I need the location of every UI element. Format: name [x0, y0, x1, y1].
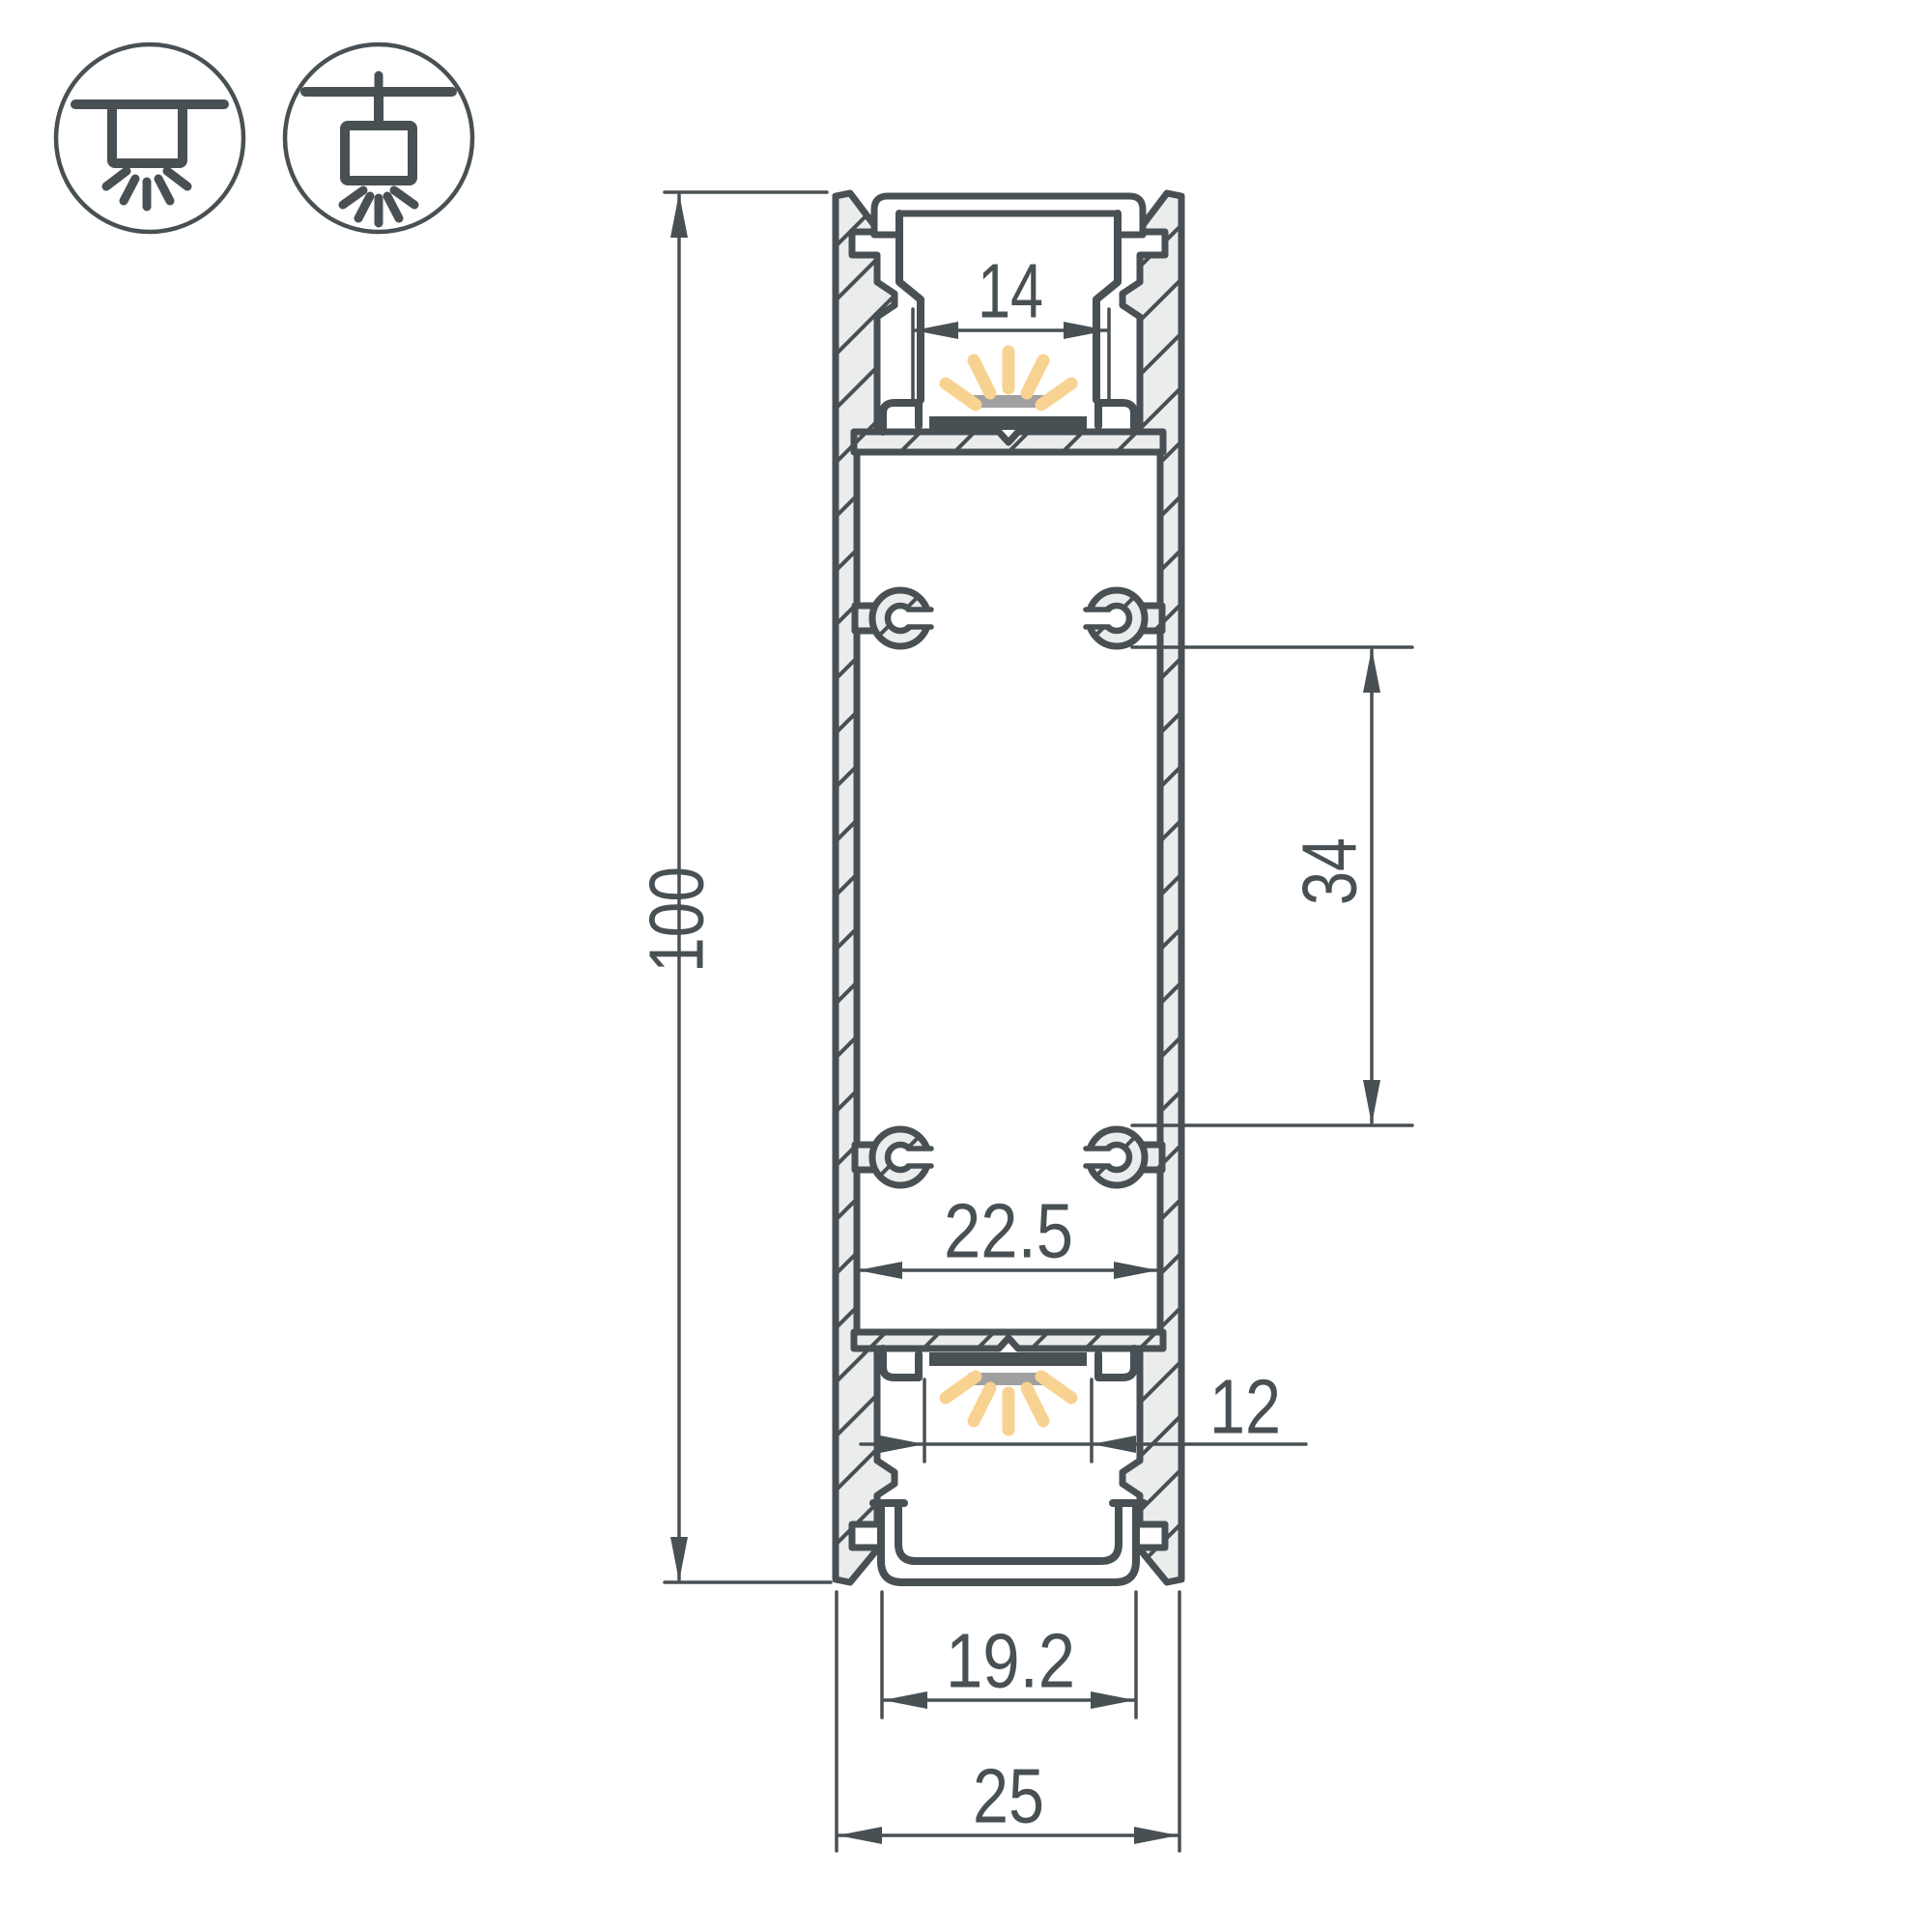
- bottom-divider-wall: [854, 1332, 1163, 1349]
- arrowhead-left: [858, 1262, 902, 1279]
- arrowhead-up: [670, 193, 688, 238]
- arrowhead-up: [1363, 648, 1380, 693]
- screw-boss-top-left: [855, 590, 935, 646]
- arrowhead-right: [1134, 1827, 1179, 1844]
- pendant-suspended-mount-icon: [285, 44, 472, 232]
- profile-technical-drawing: 100 14 34 22.5 12 19.2: [0, 0, 1932, 1932]
- dim-boss-spacing-label: 34: [1287, 838, 1373, 905]
- luminaire-box: [112, 104, 183, 163]
- dim-diffuser-width-label: 19.2: [946, 1618, 1075, 1704]
- arrowhead-left: [883, 1691, 927, 1709]
- dimension-diffuser-width-19-2: 19.2: [882, 1592, 1136, 1718]
- arrowhead-right: [1064, 322, 1108, 339]
- luminaire-box: [345, 126, 412, 181]
- light-rays-icon: [343, 190, 414, 223]
- arrowhead-down: [1363, 1080, 1380, 1124]
- light-rays-icon: [106, 171, 187, 207]
- arrowhead-right: [1091, 1691, 1135, 1709]
- surface-ceiling-mount-icon: [56, 44, 243, 232]
- tray-lip: [874, 196, 1143, 235]
- dimension-bottom-opening-12: 12: [861, 1364, 1306, 1463]
- diffuser-inner: [898, 1503, 1119, 1561]
- pcb-hook-left: [883, 1349, 919, 1378]
- led-strip-top: [929, 352, 1087, 430]
- arrowhead-right: [880, 1435, 924, 1453]
- screw-boss-bottom-left: [855, 1129, 935, 1185]
- top-divider-wall: [854, 432, 1163, 452]
- dim-overall-width-label: 25: [973, 1753, 1044, 1839]
- dim-inner-width-label: 22.5: [944, 1188, 1073, 1274]
- dim-height-label: 100: [634, 867, 720, 973]
- tray-wall-right: [1096, 213, 1118, 400]
- led-strip-bottom: [929, 1352, 1087, 1430]
- pcb-hook-left: [883, 403, 919, 432]
- pcb-hook-right: [1098, 403, 1134, 432]
- led-pcb: [929, 416, 1087, 430]
- arrowhead-right: [1114, 1262, 1158, 1279]
- dim-top-opening-label: 14: [978, 248, 1043, 334]
- tray-wall-left: [899, 213, 921, 400]
- arrowhead-left: [838, 1827, 882, 1844]
- screw-boss-top-right: [1082, 590, 1162, 646]
- diffuser: [873, 1503, 1144, 1582]
- dimension-inner-width-22-5: 22.5: [858, 1188, 1158, 1280]
- diffuser-outer: [881, 1503, 1136, 1582]
- arrowhead-down: [670, 1537, 688, 1581]
- canvas: 100 14 34 22.5 12 19.2: [0, 0, 1932, 1932]
- dimension-height-100: 100: [634, 192, 832, 1582]
- arrowhead-left: [1092, 1435, 1136, 1453]
- screw-boss-bottom-right: [1082, 1129, 1162, 1185]
- dim-bottom-opening-label: 12: [1209, 1364, 1281, 1450]
- profile-cross-section: [836, 193, 1181, 1582]
- pcb-hook-right: [1098, 1349, 1134, 1378]
- led-pcb: [929, 1352, 1087, 1366]
